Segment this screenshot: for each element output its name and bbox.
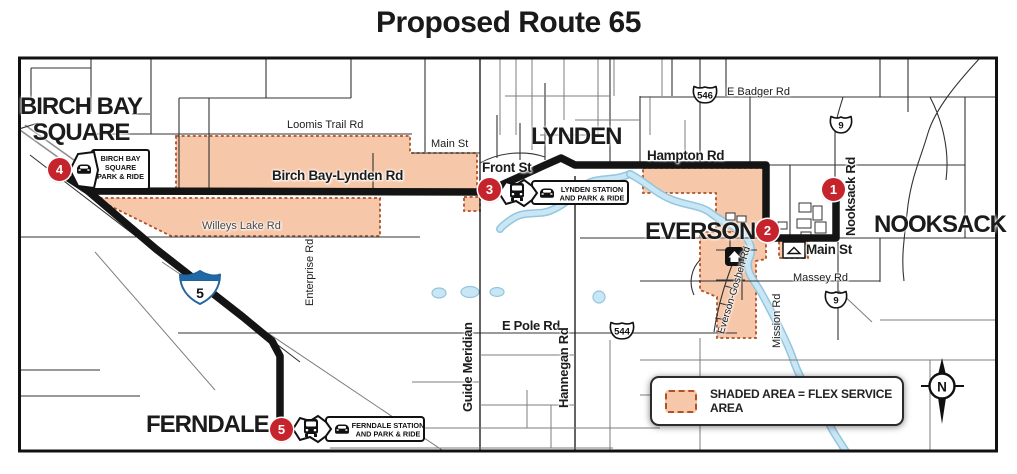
legend: SHADED AREA = FLEX SERVICE AREA: [650, 376, 904, 426]
road-label-guide-meridian: Guide Meridian: [460, 322, 475, 412]
shield-9-south: 9: [825, 292, 846, 308]
road-label-willeys-lake: Willeys Lake Rd: [202, 220, 281, 232]
route-map-page: Proposed Route 65: [0, 0, 1017, 474]
shield-544: 544: [610, 323, 633, 339]
road-label-mission: Mission Rd: [771, 294, 783, 348]
lynden-station-sign: LYNDEN STATION AND PARK & RIDE: [499, 180, 628, 206]
mainst-marker-sign: [783, 242, 805, 258]
stop-marker-3: 3: [478, 178, 501, 201]
car-icon: [335, 425, 349, 434]
stop-marker-5: 5: [270, 418, 293, 441]
svg-text:AND PARK & RIDE: AND PARK & RIDE: [356, 430, 421, 439]
ferndale-station-sign: FERNDALE STATION AND PARK & RIDE: [293, 416, 424, 442]
road-label-loomis-trail: Loomis Trail Rd: [287, 119, 363, 131]
car-icon: [77, 165, 91, 174]
road-label-hampton: Hampton Rd: [647, 148, 724, 163]
svg-text:SQUARE: SQUARE: [105, 163, 136, 172]
shield-546: 546: [693, 87, 716, 103]
svg-text:544: 544: [614, 327, 631, 338]
road-label-birch-bay-lynden: Birch Bay-Lynden Rd: [272, 168, 403, 183]
svg-text:9: 9: [838, 121, 843, 132]
svg-text:AND PARK & RIDE: AND PARK & RIDE: [560, 194, 625, 203]
car-icon: [540, 189, 554, 198]
stop-marker-1: 1: [822, 178, 845, 201]
road-label-e-badger: E Badger Rd: [727, 86, 790, 98]
road-label-e-pole: E Pole Rd: [502, 318, 560, 333]
shield-9-north: 9: [830, 117, 851, 133]
road-label-main-st-everson: Main St: [806, 242, 852, 257]
flex-area-swatch: [665, 390, 697, 413]
road-label-massey: Massey Rd: [793, 272, 848, 284]
stop-marker-2: 2: [756, 219, 779, 242]
road-label-hannegan: Hannegan Rd: [556, 328, 571, 408]
birch-bay-line1: BIRCH BAY: [17, 94, 145, 120]
svg-text:5: 5: [196, 285, 204, 301]
birch-bay-line2: SQUARE: [17, 120, 145, 146]
city-label-nooksack: NOOKSACK: [874, 211, 1006, 239]
city-label-ferndale: FERNDALE: [146, 411, 269, 439]
compass-rose: N: [921, 358, 964, 424]
road-label-nooksack-rd: Nooksack Rd: [843, 157, 858, 236]
birchbay-station-sign: BIRCH BAY SQUARE PARK & RIDE: [70, 150, 149, 189]
svg-text:N: N: [937, 380, 947, 395]
legend-label: SHADED AREA = FLEX SERVICE AREA: [710, 387, 902, 415]
city-label-everson: EVERSON: [645, 218, 755, 246]
svg-text:PARK & RIDE: PARK & RIDE: [97, 172, 144, 181]
flex-area-lynden-small: [464, 197, 480, 211]
ponds: [432, 287, 605, 304]
city-label-lynden: LYNDEN: [531, 123, 621, 151]
stop-marker-4: 4: [48, 158, 71, 181]
road-label-front-st: Front St: [482, 160, 531, 175]
city-label-birch-bay-square: BIRCH BAY SQUARE: [17, 94, 145, 146]
svg-text:BIRCH BAY: BIRCH BAY: [101, 154, 141, 163]
svg-text:546: 546: [697, 91, 713, 102]
road-label-main-st-lynden: Main St: [431, 138, 468, 150]
svg-text:9: 9: [833, 296, 838, 307]
road-label-enterprise: Enterprise Rd: [304, 239, 316, 306]
